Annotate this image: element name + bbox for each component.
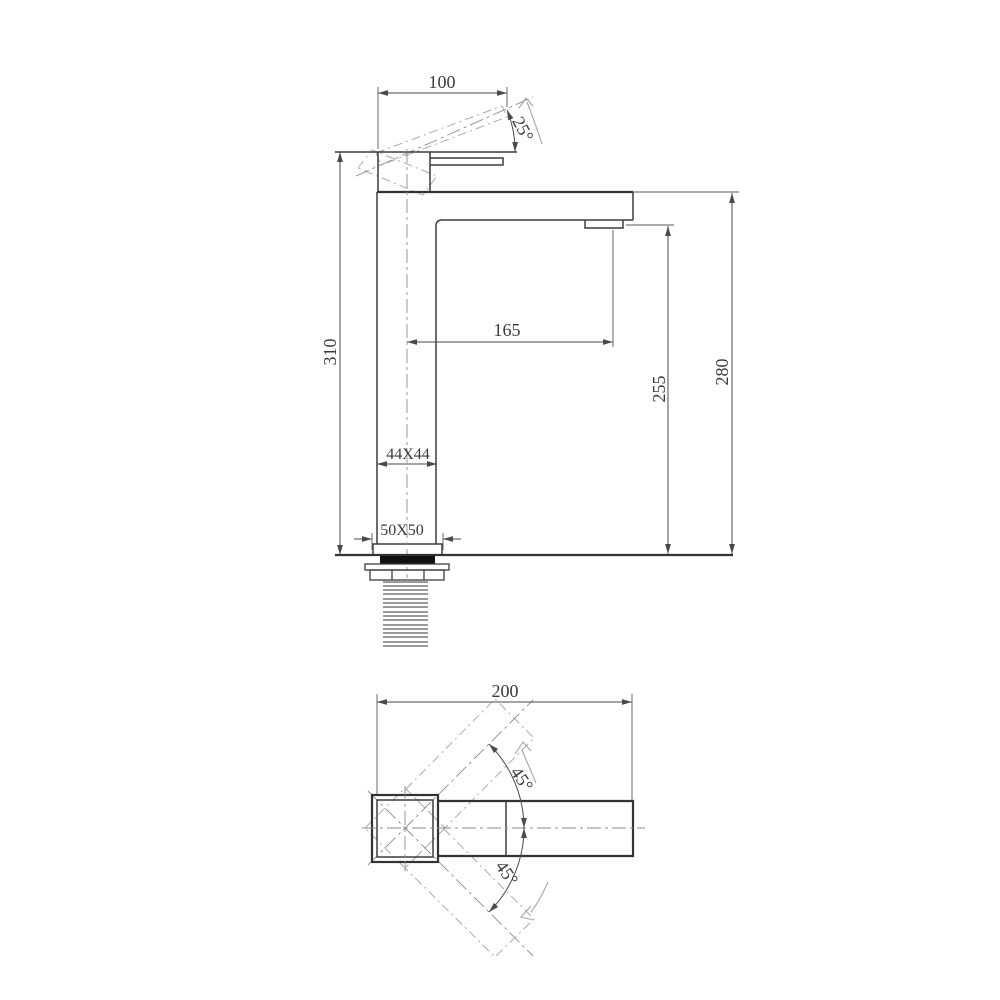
faucet-outline [335, 149, 633, 578]
page: 100 25° 310 165 255 280 44X44 [0, 0, 1000, 1000]
threaded-shank [383, 582, 428, 646]
faucet-technical-drawing: 100 25° 310 165 255 280 44X44 [0, 0, 1000, 1000]
plan-view: 200 45° 45° [362, 681, 645, 957]
rubber-gasket [380, 556, 435, 564]
dim-label-200: 200 [492, 681, 519, 701]
phantom-handle-centerline [356, 97, 533, 176]
dim-label-255: 255 [649, 376, 669, 403]
phantom-handle-positions [356, 97, 533, 195]
phantom-centerline-up [368, 700, 533, 865]
spout-underside-and-body-right [436, 220, 633, 544]
dim-label-45-down: 45° [492, 857, 523, 889]
dim-label-100: 100 [429, 72, 456, 92]
side-view: 100 25° 310 165 255 280 44X44 [320, 72, 739, 646]
dim-label-310: 310 [320, 339, 340, 366]
phantom-handle-up [376, 106, 507, 165]
mounting-hardware [335, 555, 733, 646]
nut-facets [392, 570, 424, 580]
dim-label-45-up: 45° [507, 763, 538, 795]
lift-arrow-head [519, 98, 533, 108]
swivel-arrow-down-head [521, 906, 533, 920]
dim-label-44x44: 44X44 [386, 446, 430, 463]
dimensions-side: 100 25° 310 165 255 280 44X44 [320, 72, 739, 555]
handle-base-block [378, 152, 430, 192]
dim-label-50x50: 50X50 [380, 522, 424, 539]
swivel-arrow-down-shaft [531, 882, 548, 912]
handle-lever-rest [430, 158, 503, 165]
dim-label-280: 280 [712, 359, 732, 386]
phantom-handle-base [358, 150, 437, 195]
spout-beam-plan [438, 801, 633, 856]
dim-label-165: 165 [494, 320, 521, 340]
spout-nozzle [585, 220, 623, 228]
base-plate [373, 544, 442, 555]
